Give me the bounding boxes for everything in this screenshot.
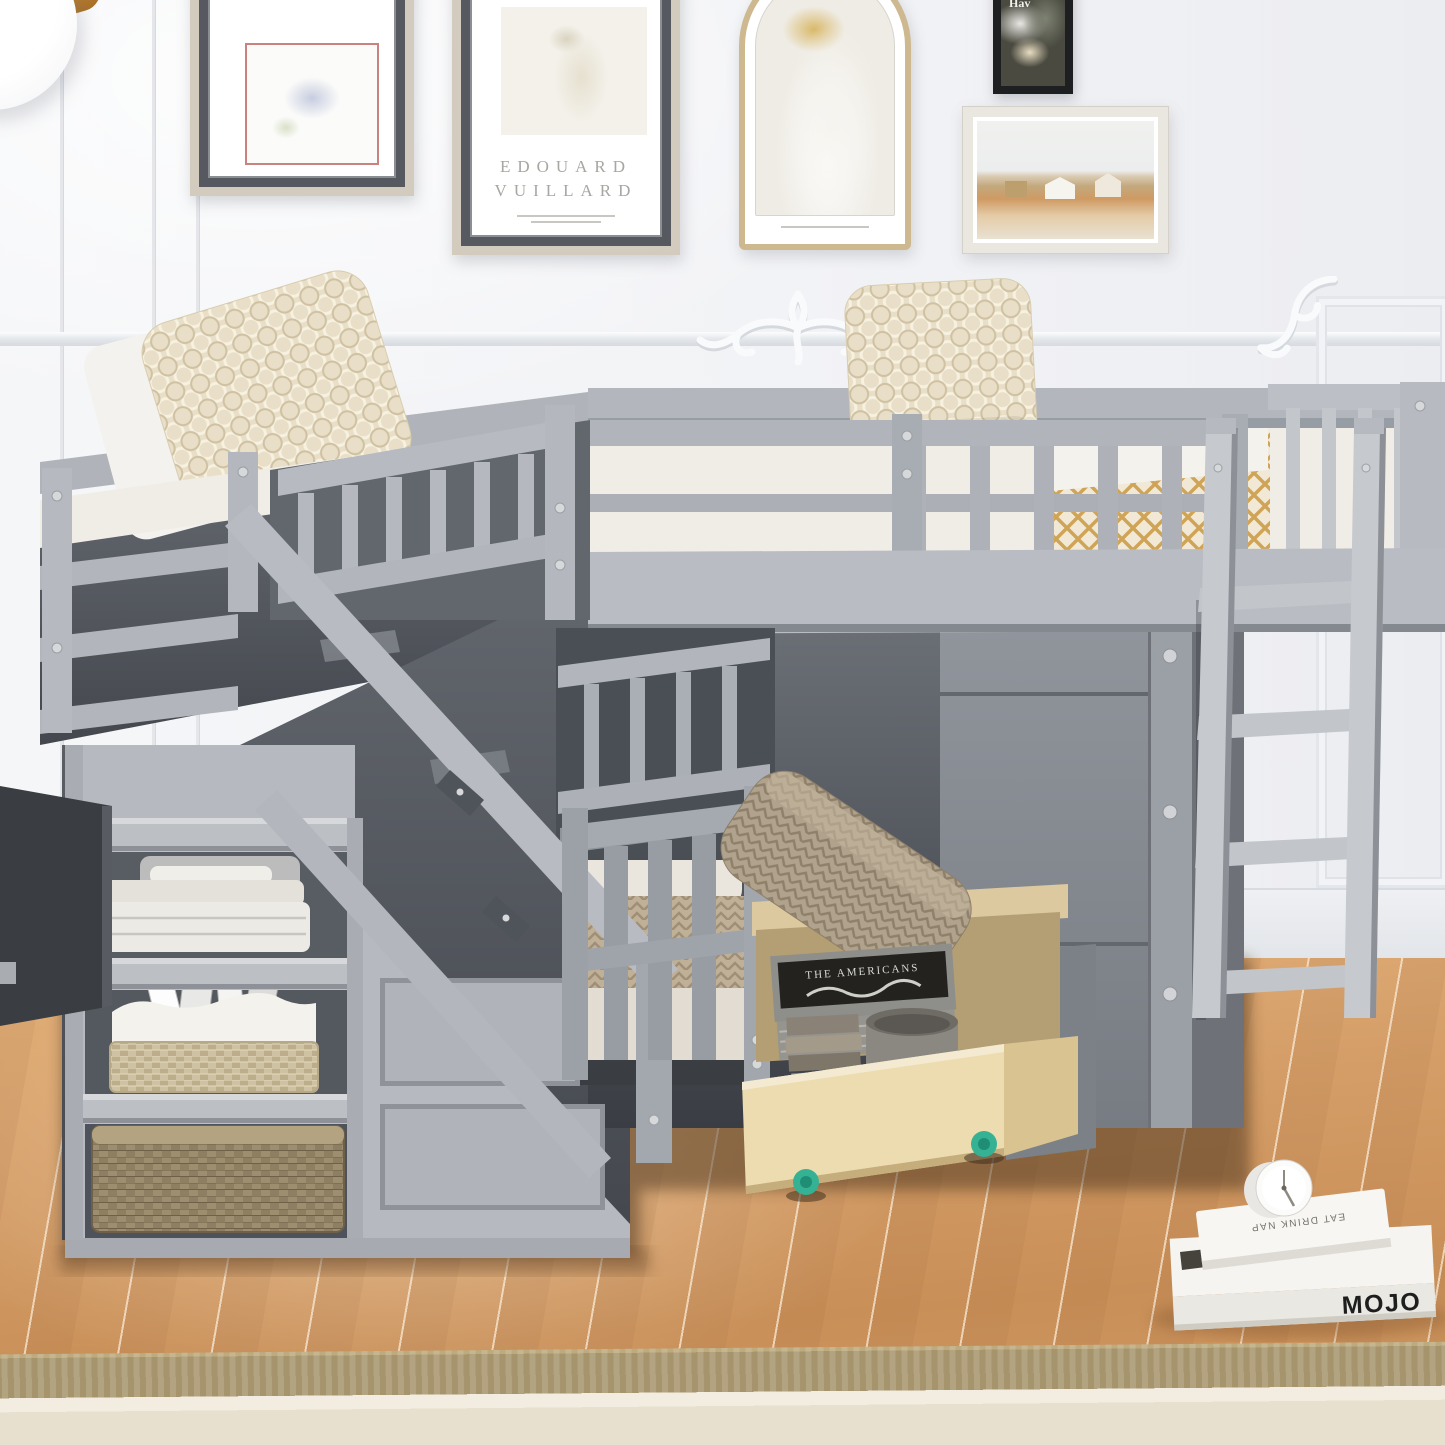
right-loft-bed: [588, 277, 1445, 634]
loft-bunk-bed-unit: THE AMERICANS: [0, 0, 1445, 1445]
bolt: [52, 643, 62, 653]
stair-plinth: [65, 1238, 630, 1258]
wardrobe-knob: [1163, 805, 1177, 819]
right-bed-mattress: [588, 428, 1445, 552]
wardrobe-knob: [1163, 649, 1177, 663]
bottom-book-spine: MOJO: [1341, 1288, 1422, 1320]
bolt: [52, 491, 62, 501]
bolt: [1362, 464, 1370, 472]
left-bed-corner-post: [42, 468, 72, 733]
bolt: [649, 1115, 659, 1125]
wardrobe-stile: [1148, 628, 1192, 1128]
bolt: [555, 560, 565, 570]
room-scene: EDOUARD VUILLARD Hav: [0, 0, 1445, 1445]
wardrobe-knob: [1163, 987, 1177, 1001]
large-wicker-basket: [92, 1126, 344, 1232]
bolt: [902, 469, 912, 479]
bolt: [1415, 401, 1425, 411]
tv-screen: [0, 786, 112, 1026]
bolt: [902, 431, 912, 441]
bolt: [238, 467, 248, 477]
desk-clock: [1244, 1160, 1312, 1218]
tv-stand: [0, 962, 16, 984]
headboard-post-left: [562, 808, 588, 1080]
bolt: [555, 503, 565, 513]
bolt: [1214, 464, 1222, 472]
